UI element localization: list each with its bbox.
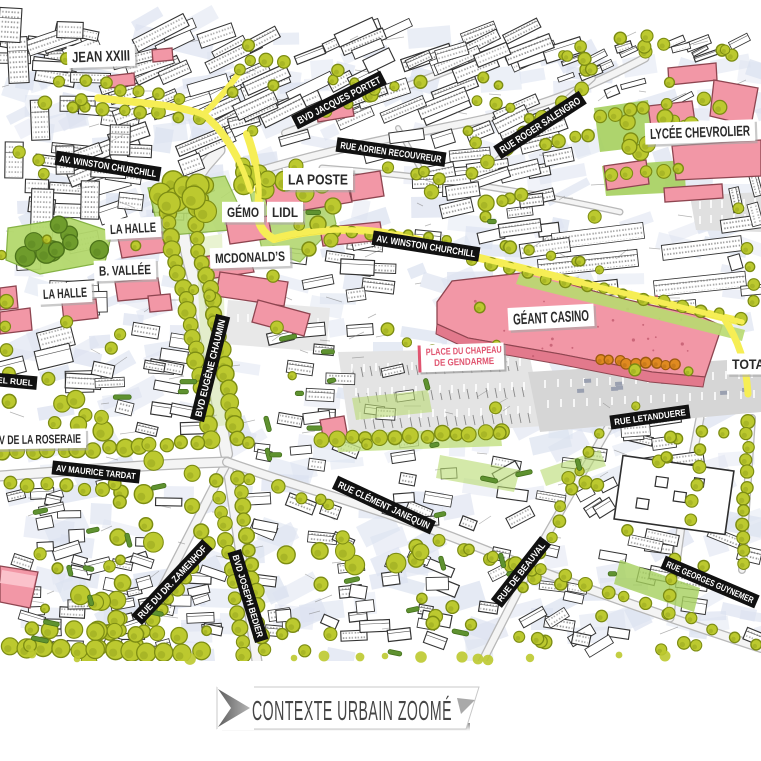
svg-text:B. VALLÉE: B. VALLÉE: [99, 262, 151, 279]
svg-text:V DE LA ROSERAIE: V DE LA ROSERAIE: [0, 432, 81, 447]
svg-text:GÉMO: GÉMO: [227, 205, 259, 220]
svg-text:LA HALLE: LA HALLE: [110, 220, 157, 237]
svg-text:LYCÉE CHEVROLIER: LYCÉE CHEVROLIER: [650, 122, 751, 142]
svg-text:LA POSTE: LA POSTE: [288, 171, 348, 188]
svg-text:LA HALLE: LA HALLE: [43, 285, 88, 302]
svg-text:CONTEXTE URBAIN ZOOMÉ: CONTEXTE URBAIN ZOOMÉ: [252, 695, 452, 726]
svg-text:MCDONALD’S: MCDONALD’S: [215, 249, 285, 266]
svg-text:TOTAL: TOTAL: [732, 356, 761, 372]
svg-text:JEAN XXIII: JEAN XXIII: [72, 47, 131, 66]
svg-text:LIDL: LIDL: [272, 205, 298, 220]
svg-text:DE GENDARME: DE GENDARME: [434, 356, 494, 369]
